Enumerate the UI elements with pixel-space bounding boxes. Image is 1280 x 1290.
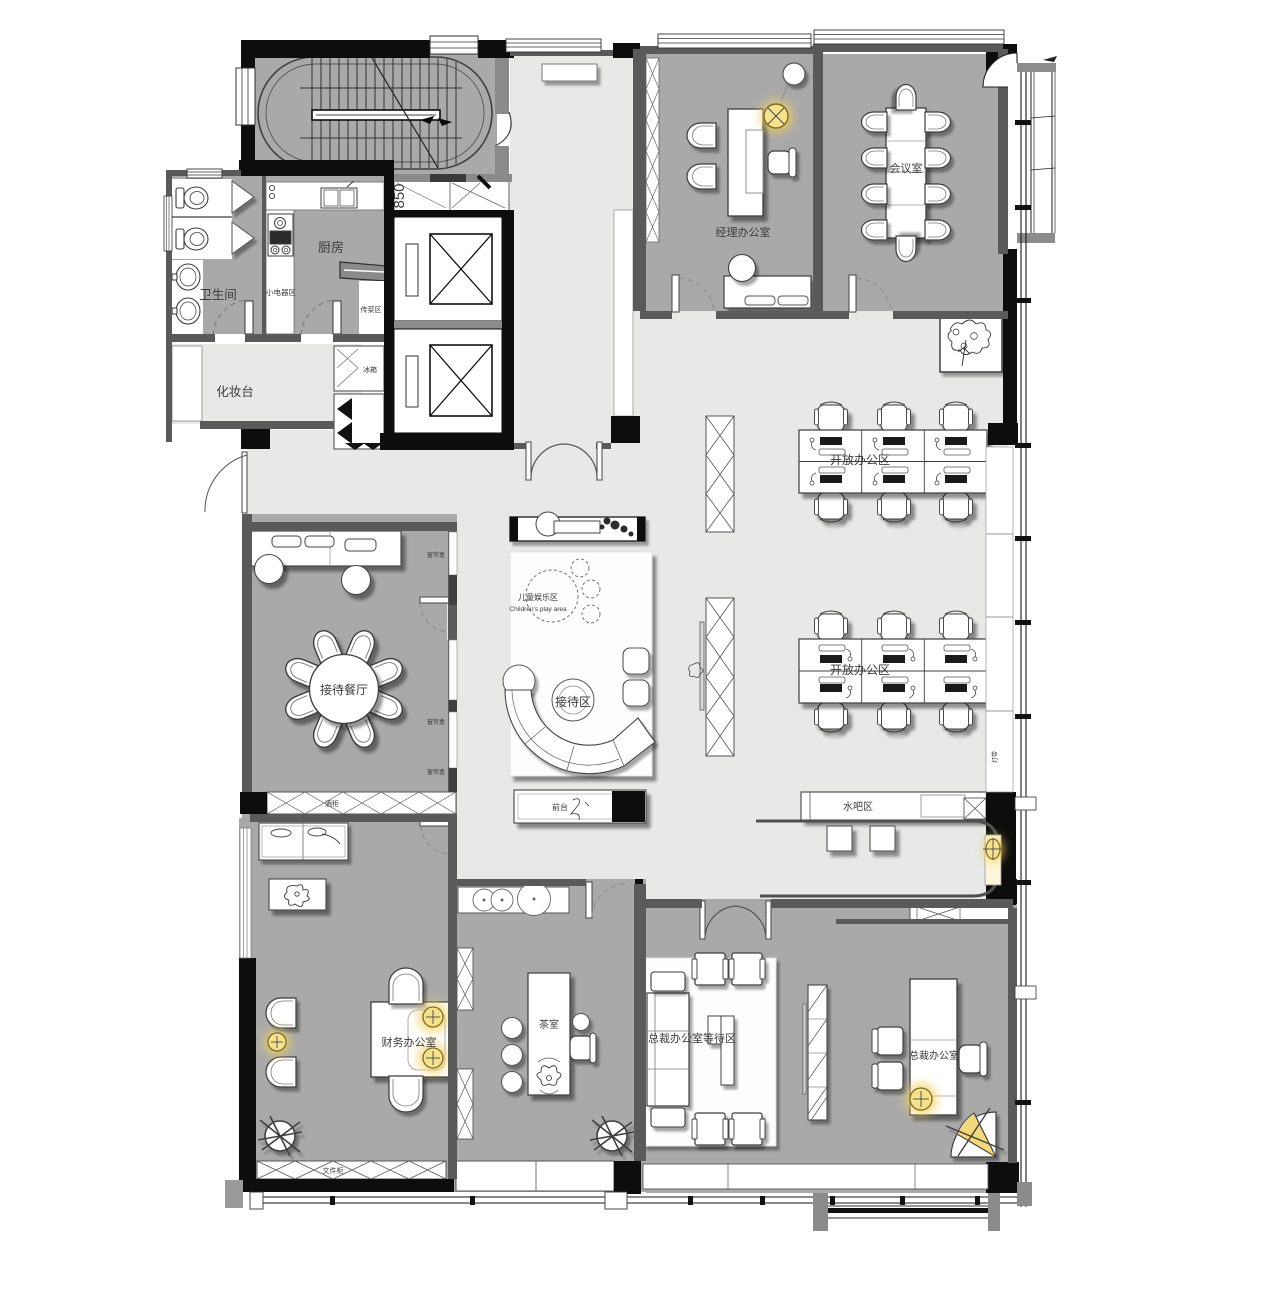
svg-text:厨房: 厨房: [318, 240, 344, 255]
svg-text:小电器区: 小电器区: [266, 287, 296, 297]
svg-text:Children's play area: Children's play area: [509, 606, 567, 613]
svg-text:财务办公室: 财务办公室: [382, 1035, 437, 1049]
svg-text:酒柜: 酒柜: [325, 799, 339, 808]
svg-text:开放办公区: 开放办公区: [830, 452, 890, 467]
svg-text:窗帘盒: 窗帘盒: [427, 718, 445, 726]
svg-text:总裁办公室: 总裁办公室: [909, 1049, 959, 1062]
svg-text:冰箱: 冰箱: [363, 365, 377, 374]
svg-text:前台: 前台: [552, 802, 568, 812]
svg-text:经理办公室: 经理办公室: [716, 225, 771, 239]
svg-text:水吧区: 水吧区: [843, 801, 873, 813]
svg-text:儿童娱乐区: 儿童娱乐区: [518, 592, 558, 602]
svg-text:茶室: 茶室: [539, 1018, 559, 1031]
svg-text:传菜区: 传菜区: [361, 305, 382, 314]
svg-text:接待区: 接待区: [555, 694, 591, 709]
svg-text:会议室: 会议室: [890, 161, 923, 175]
svg-text:接待餐厅: 接待餐厅: [320, 682, 368, 697]
svg-text:总裁办公室等待区: 总裁办公室等待区: [648, 1031, 736, 1045]
svg-text:化妆台: 化妆台: [216, 384, 254, 399]
svg-text:灯带: 灯带: [991, 751, 999, 763]
svg-text:开放办公区: 开放办公区: [830, 662, 890, 677]
svg-text:窗帘盒: 窗帘盒: [427, 551, 445, 559]
svg-text:窗帘盒: 窗帘盒: [427, 768, 445, 776]
svg-text:文件柜: 文件柜: [323, 1166, 344, 1175]
svg-text:卫生间: 卫生间: [199, 288, 237, 302]
